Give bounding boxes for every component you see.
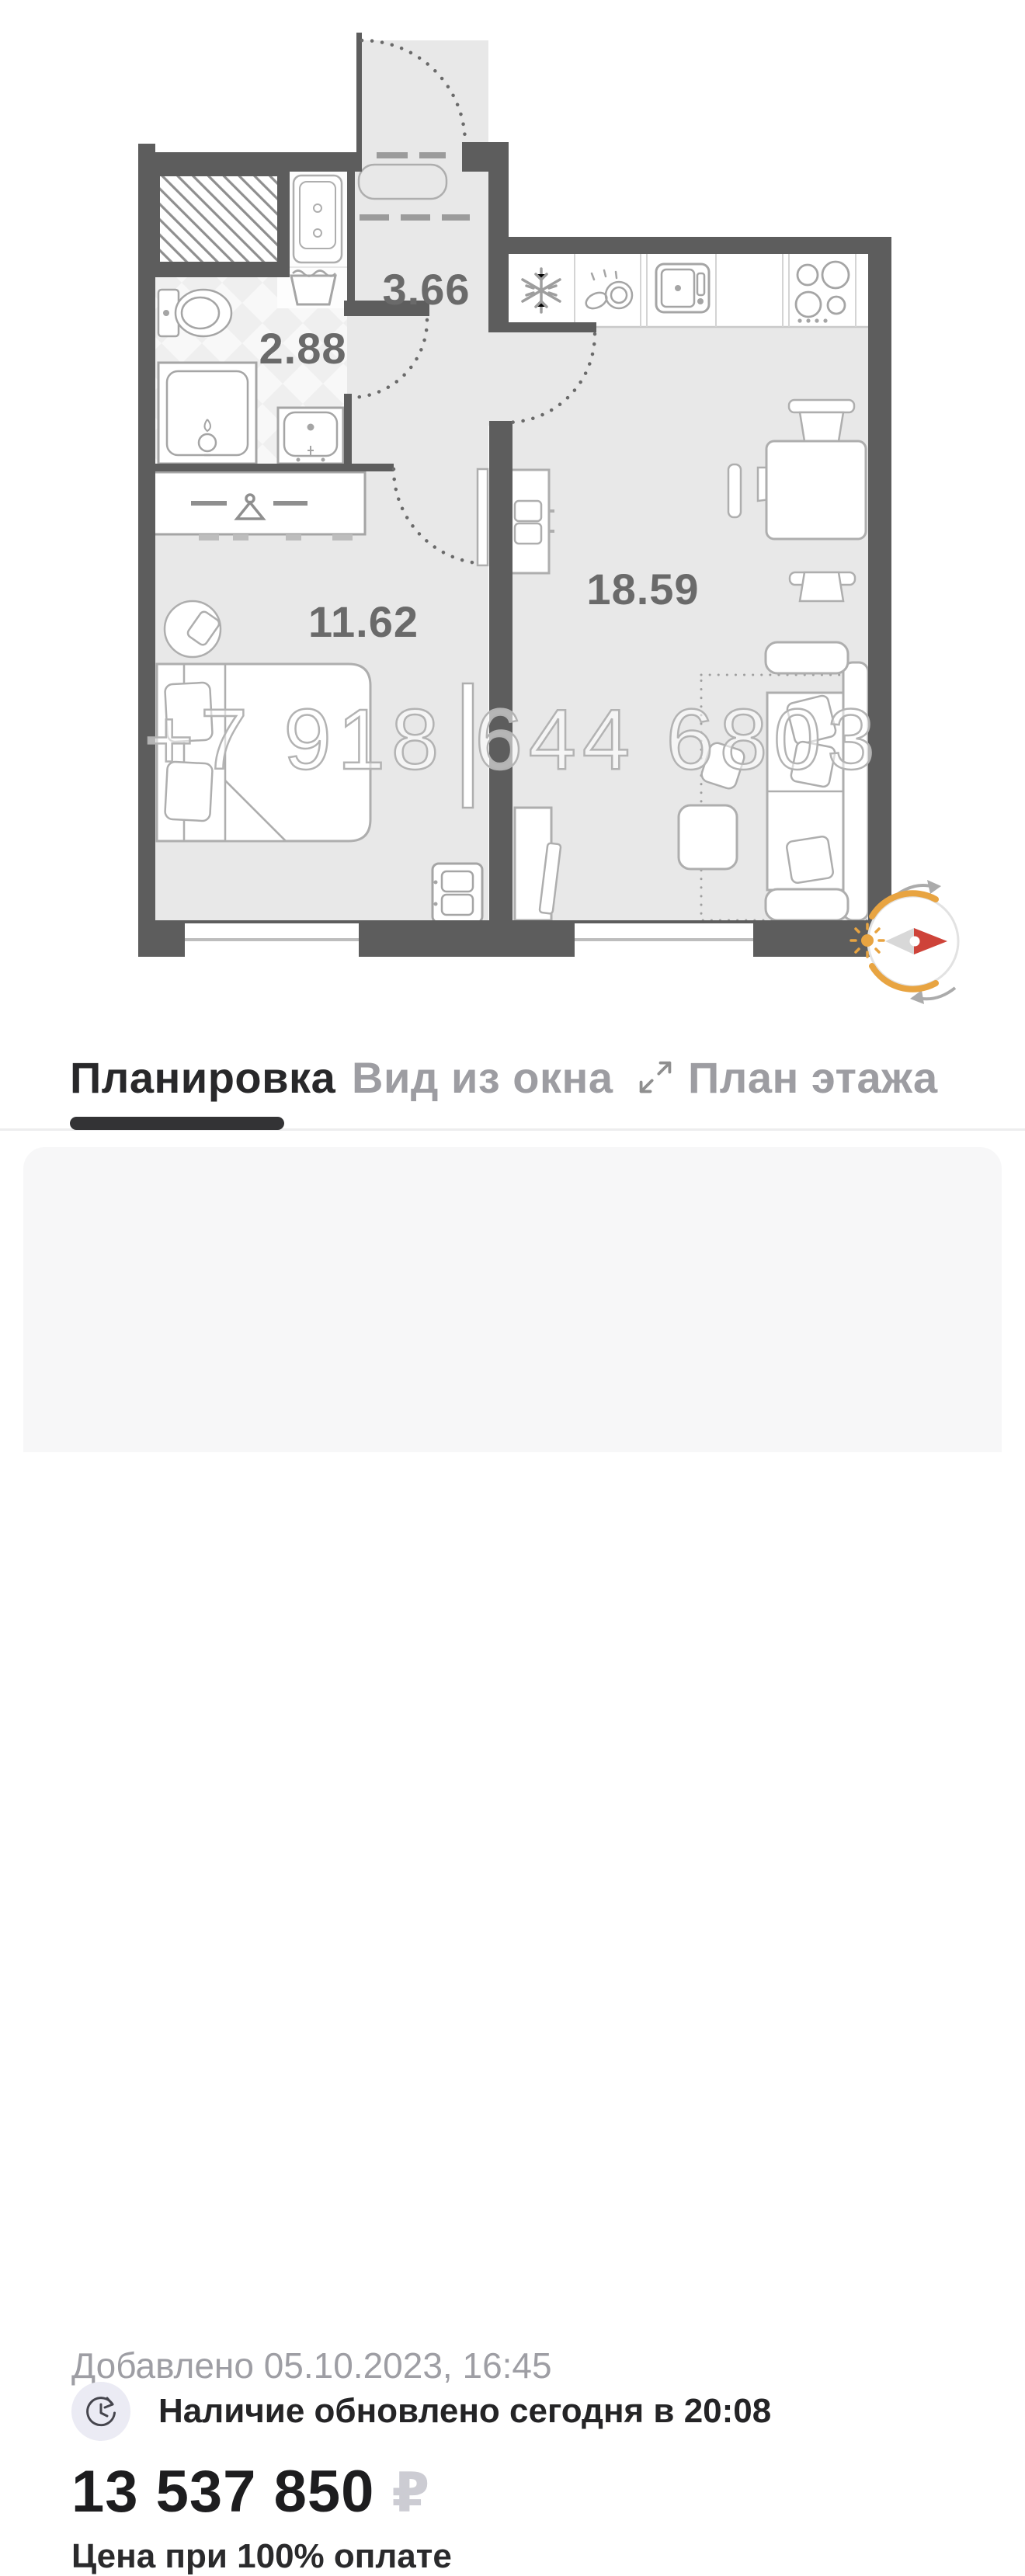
shower-icon — [158, 363, 256, 464]
washbasin-icon — [278, 408, 343, 464]
clock-refresh-icon — [71, 2382, 130, 2441]
bedroom-door-leaf — [478, 469, 488, 565]
ruble-sign: ₽ — [391, 2461, 429, 2525]
sink-icon — [656, 264, 709, 312]
bedside-lamp — [165, 601, 221, 657]
radiator-bedroom — [433, 864, 482, 923]
price-row: 13 537 850 ₽ — [71, 2458, 429, 2526]
price-value: 13 537 850 — [71, 2458, 374, 2526]
floor-plan: 3.66 2.88 11.62 18.59 +7 918 644 6803 — [0, 0, 1025, 1025]
tab-label: Планировка — [70, 1052, 335, 1103]
wardrobe — [148, 472, 365, 541]
sun-icon — [851, 924, 884, 957]
availability-row: Наличие обновлено сегодня в 20:08 — [71, 2382, 771, 2441]
tab-plan-etazha[interactable]: План этажа — [635, 1050, 938, 1104]
coffee-table — [679, 805, 737, 869]
tab-label: Вид из окна — [352, 1052, 613, 1103]
tab-planirovka[interactable]: Планировка — [70, 1050, 335, 1104]
expand-icon — [635, 1057, 676, 1097]
shelf-unit — [509, 470, 554, 573]
tab-bar: Планировка Вид из окна План этажа — [0, 1050, 1025, 1104]
listing-page: { "floor_plan": { "rooms": [ {"id": "hal… — [0, 0, 1025, 1452]
tab-label: План этажа — [688, 1052, 938, 1103]
toilet-icon — [158, 290, 231, 336]
added-date: Добавлено 05.10.2023, 16:45 — [71, 2345, 552, 2387]
active-tab-underline — [70, 1117, 284, 1130]
floor-plan-svg: 3.66 2.88 11.62 18.59 +7 918 644 6803 — [0, 0, 1025, 1025]
room-label-bathroom: 2.88 — [259, 324, 347, 373]
listing-info-card: Добавлено 05.10.2023, 16:45 Наличие обно… — [23, 1147, 1002, 1452]
room-label-living: 18.59 — [586, 565, 699, 614]
watermark-text: +7 918 644 6803 — [144, 692, 881, 787]
tab-vid-iz-okna[interactable]: Вид из окна — [352, 1050, 613, 1104]
room-label-bedroom: 11.62 — [308, 597, 419, 646]
closet-hatch — [155, 172, 282, 266]
price-note: Цена при 100% оплате — [71, 2537, 452, 2576]
availability-text: Наличие обновлено сегодня в 20:08 — [158, 2392, 771, 2431]
room-label-hallway: 3.66 — [383, 265, 471, 314]
bathtub-icon — [290, 172, 347, 266]
kitchen-counter — [509, 254, 868, 327]
